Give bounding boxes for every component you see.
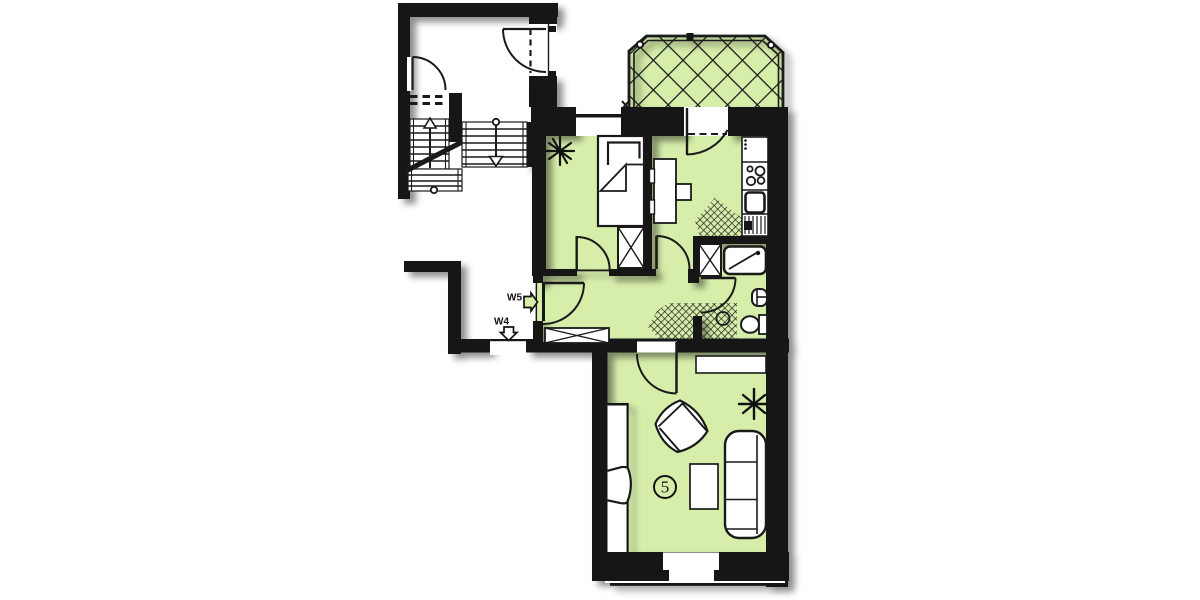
svg-text:W4: W4 <box>494 317 509 328</box>
svg-text:5: 5 <box>661 478 670 497</box>
svg-text:W5: W5 <box>507 293 522 304</box>
